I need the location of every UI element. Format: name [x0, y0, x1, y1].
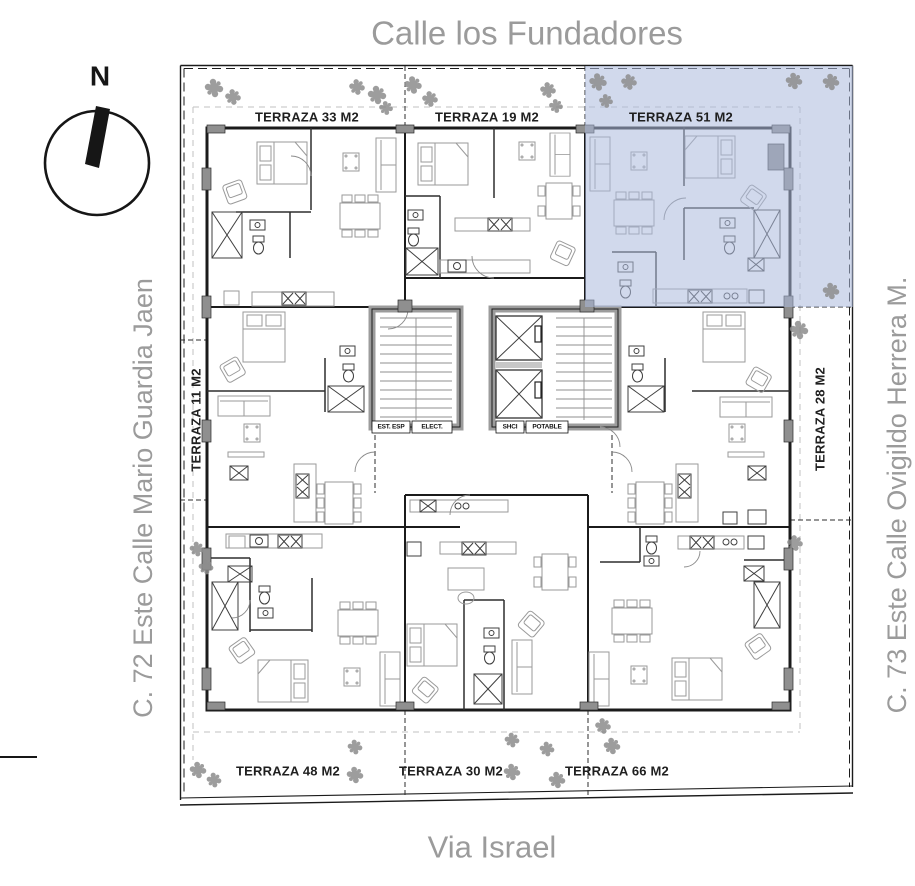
- elevator-shaft: [496, 316, 542, 360]
- elevator-core-right: SHCI POTABLE: [492, 309, 620, 447]
- north-label: N: [90, 61, 110, 92]
- floor-plan-page: EST. ESP ELECT. SHCI POTABLE: [0, 0, 915, 886]
- terrace-label-33: TERRAZA 33 M2: [255, 110, 359, 125]
- street-label-top: Calle los Fundadores: [371, 15, 683, 52]
- terrace-label-51: TERRAZA 51 M2: [629, 110, 733, 125]
- stair-core-left: EST. ESP ELECT.: [372, 309, 460, 433]
- street-label-right: C. 73 Este Calle Ovigildo Herrera M.: [882, 277, 912, 714]
- street-label-bottom: Via Israel: [428, 830, 557, 865]
- highlighted-unit-overlay[interactable]: [585, 66, 853, 307]
- street-label-left: C. 72 Este Calle Mario Guardia Jaen: [128, 278, 158, 718]
- terrace-label-11: TERRAZA 11 M2: [189, 368, 204, 471]
- floor-plan: EST. ESP ELECT. SHCI POTABLE: [0, 0, 915, 886]
- terrace-label-28: TERRAZA 28 M2: [813, 367, 828, 471]
- core-label-potable: POTABLE: [532, 424, 562, 431]
- north-compass-icon: N: [45, 61, 149, 216]
- terrace-label-19: TERRAZA 19 M2: [435, 110, 539, 125]
- core-label-est-esp: EST. ESP: [378, 424, 406, 431]
- terrace-label-66: TERRAZA 66 M2: [565, 764, 669, 779]
- terrace-label-30: TERRAZA 30 M2: [399, 764, 503, 779]
- elevator-shaft: [496, 370, 542, 418]
- terrace-label-48: TERRAZA 48 M2: [236, 764, 340, 779]
- core-label-elect: ELECT.: [421, 424, 443, 431]
- core-label-shci: SHCI: [503, 424, 518, 431]
